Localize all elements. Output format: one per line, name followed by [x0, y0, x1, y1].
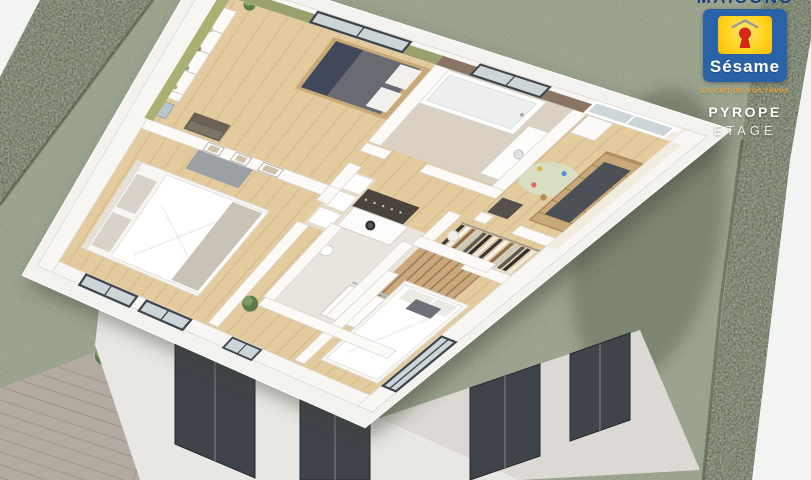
- brand-top-cropped: MAISONS: [682, 0, 808, 8]
- floorplan-render: MAISONS Sésame La clef de vos rêves PYRO…: [0, 0, 811, 480]
- closet-hanger: [391, 208, 393, 210]
- logo-blue-box: Sésame: [703, 9, 787, 82]
- builder-logo: MAISONS Sésame La clef de vos rêves PYRO…: [682, 0, 808, 138]
- bathtub-faucet: [520, 113, 524, 117]
- toy: [561, 171, 566, 176]
- dressing-pouf: [447, 231, 458, 242]
- keyhole-icon: [718, 16, 772, 54]
- bathroom-sink: [514, 150, 523, 159]
- closet-hanger: [373, 202, 375, 204]
- toy: [537, 166, 542, 171]
- closet-hanger: [382, 205, 384, 207]
- brand-tagline: La clef de vos rêves: [682, 85, 808, 95]
- toy: [531, 182, 536, 187]
- model-name: PYROPE: [682, 104, 808, 120]
- brand-top-label: MAISONS: [682, 0, 808, 8]
- wash-basin-inner: [368, 223, 373, 228]
- brand-name: Sésame: [703, 57, 787, 77]
- closet-hanger: [365, 199, 367, 201]
- floor-label: ETAGE: [682, 123, 808, 138]
- teddy-bear: [540, 194, 546, 200]
- closet-hanger: [399, 211, 401, 213]
